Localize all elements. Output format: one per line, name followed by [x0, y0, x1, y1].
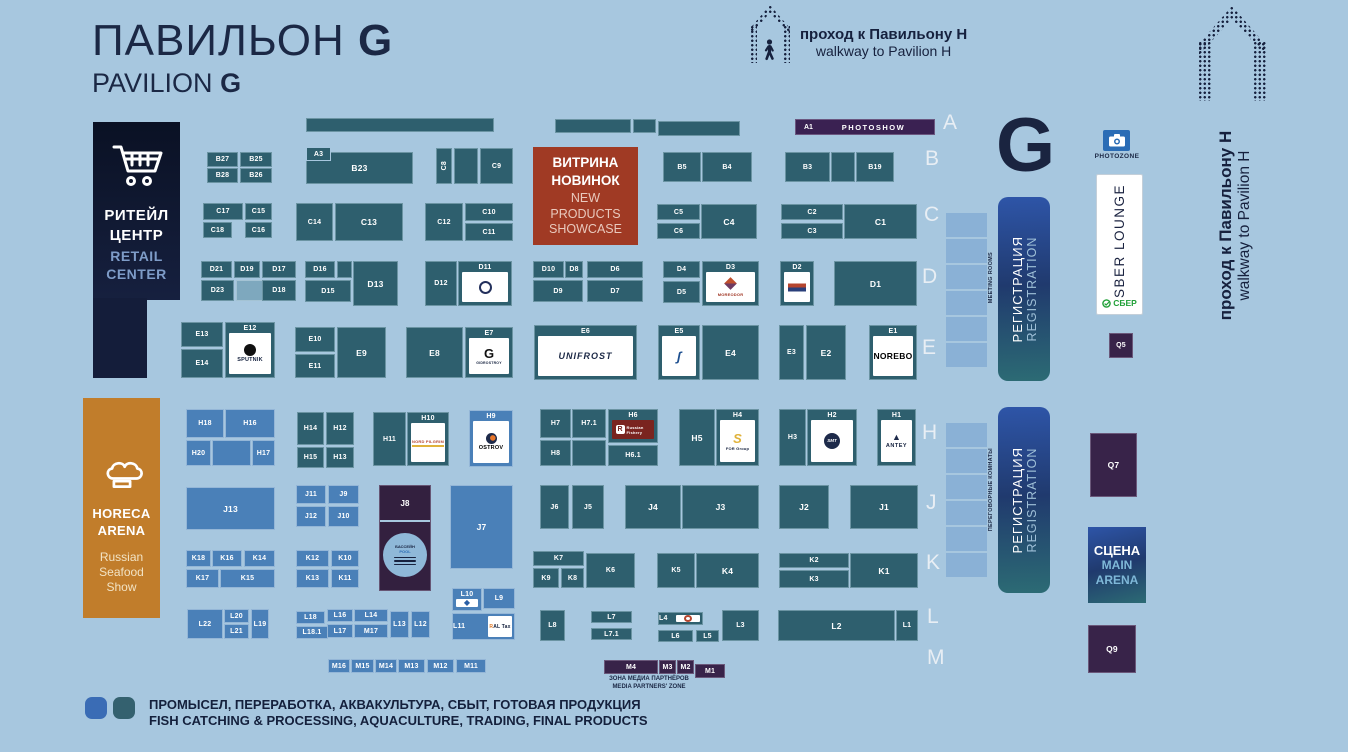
unifrost-logo: UNIFROST	[538, 336, 633, 376]
booth-e2[interactable]: E2	[806, 325, 846, 380]
booth-label: D1	[870, 279, 881, 289]
booth-k9[interactable]: K9	[533, 568, 559, 588]
booth-d10[interactable]: D10	[533, 261, 564, 278]
booth-k1[interactable]: K1	[850, 553, 918, 588]
booth-k3[interactable]: K3	[779, 570, 849, 588]
booth-label: M3	[662, 664, 672, 671]
booth-b25[interactable]: B25	[240, 152, 272, 167]
walkway-top-ru: проход к Павильону H	[800, 26, 967, 43]
booth-c6[interactable]: C6	[657, 223, 700, 239]
row-letter-a: A	[943, 112, 957, 133]
booth-l16[interactable]: L16	[327, 609, 353, 622]
media-zone-en: MEDIA PARTNERS' ZONE	[579, 683, 719, 691]
booth-l4[interactable]: L4	[658, 612, 703, 625]
stage-label-ru: СЦЕНА	[1094, 543, 1140, 558]
meeting-room	[946, 449, 987, 473]
booth-b4[interactable]: B4	[702, 152, 752, 182]
booth-c9[interactable]: C9	[480, 148, 513, 184]
booth-unlabeled[interactable]	[658, 121, 740, 136]
booth-h8[interactable]: H8	[540, 440, 571, 466]
booth-j8[interactable]: J8 БАССЕЙН POOL	[379, 485, 431, 591]
booth-c11[interactable]: C11	[465, 223, 513, 241]
page-title: ПАВИЛЬОН G PAVILION G	[92, 16, 393, 99]
booth-k2[interactable]: K2	[779, 553, 849, 568]
booth-label: L7.1	[604, 631, 619, 638]
booth-label: B26	[249, 172, 262, 179]
meeting-room	[946, 317, 987, 341]
booth-l11[interactable]: L11RAL Tax	[452, 613, 515, 640]
booth-h15[interactable]: H15	[297, 447, 324, 468]
booth-label: C10	[482, 209, 495, 216]
booth-label: K11	[338, 575, 351, 582]
booth-unlabeled[interactable]	[236, 280, 264, 301]
booth-k8[interactable]: K8	[561, 568, 584, 588]
booth-h7[interactable]: H7	[540, 409, 571, 438]
row-letter-d: D	[922, 266, 937, 287]
gidrostroy-logo: GIDROSTROY	[469, 338, 509, 374]
booth-l2[interactable]: L2	[778, 610, 895, 641]
booth-k16[interactable]: K16	[212, 550, 242, 567]
booth-c16[interactable]: C16	[245, 222, 272, 238]
booth-m12[interactable]: M12	[427, 659, 454, 673]
booth-label: K1	[878, 566, 889, 576]
booth-d16[interactable]: D16	[305, 261, 335, 278]
booth-unlabeled[interactable]	[633, 119, 656, 133]
booth-l14[interactable]: L14	[354, 609, 388, 622]
booth-d1[interactable]: D1	[834, 261, 917, 306]
title-letter-en: G	[220, 68, 241, 98]
chef-hat-icon	[101, 456, 143, 492]
booth-label: K4	[722, 566, 733, 576]
booth-j9[interactable]: J9	[328, 485, 359, 504]
retail-label-ru2: ЦЕНТР	[110, 227, 163, 244]
booth-l13[interactable]: L13	[390, 611, 409, 638]
booth-label: H6	[628, 412, 637, 419]
booth-l18.1[interactable]: L18.1	[296, 626, 328, 639]
booth-label: C18	[211, 227, 224, 234]
booth-l20[interactable]: L20	[224, 609, 249, 623]
booth-h4[interactable]: H4FOR Group	[716, 409, 759, 466]
meeting-room	[946, 291, 987, 315]
booth-h2[interactable]: H2	[807, 409, 857, 466]
booth-e8[interactable]: E8	[406, 327, 463, 378]
horeca-arena[interactable]: HORECA ARENA Russian Seafood Show	[83, 398, 160, 618]
showcase-ru1: ВИТРИНА	[553, 155, 619, 170]
booth-label: H7	[551, 420, 560, 427]
booth-m16[interactable]: M16	[328, 659, 350, 673]
booth-k17[interactable]: K17	[186, 569, 219, 588]
main-arena-stage[interactable]: СЦЕНА MAIN ARENA	[1088, 527, 1146, 603]
booth-j7[interactable]: J7	[450, 485, 513, 569]
booth-d3[interactable]: D3MOREODOR	[702, 261, 759, 306]
booth-b28[interactable]: B28	[207, 168, 238, 183]
booth-d2[interactable]: D2	[780, 261, 814, 306]
booth-d23[interactable]: D23	[201, 280, 234, 301]
booth-q9[interactable]: Q9	[1088, 625, 1136, 673]
booth-label: H1	[892, 412, 901, 419]
booth-d19[interactable]: D19	[234, 261, 260, 278]
booth-label: C6	[674, 228, 683, 235]
booth-h14[interactable]: H14	[297, 412, 324, 445]
booth-h7.1[interactable]: H7.1	[572, 409, 606, 438]
booth-label: C2	[807, 209, 816, 216]
booth-c18[interactable]: C18	[203, 222, 232, 238]
booth-label: B3	[803, 164, 812, 171]
booth-l7.1[interactable]: L7.1	[591, 628, 632, 640]
ostrov-logo: OSTROV	[473, 421, 509, 463]
booth-label: Q7	[1108, 460, 1120, 470]
booth-label: K10	[338, 555, 351, 562]
booth-label: D21	[210, 266, 223, 273]
booth-label: M1	[705, 668, 715, 675]
booth-k18[interactable]: K18	[186, 550, 211, 567]
booth-label: E14	[195, 360, 208, 367]
booth-d21[interactable]: D21	[201, 261, 232, 278]
booth-label: C3	[807, 228, 816, 235]
booth-e14[interactable]: E14	[181, 349, 223, 378]
booth-label: D19	[240, 266, 253, 273]
booth-j5[interactable]: J5	[572, 485, 604, 529]
booth-l6[interactable]: L6	[658, 630, 693, 642]
booth-unlabeled[interactable]	[572, 440, 606, 466]
booth-label: L13	[393, 621, 406, 628]
booth-label: L6	[671, 633, 680, 640]
ral-logo: RAL Tax	[488, 616, 512, 637]
booth-c13[interactable]: C13	[335, 203, 403, 241]
booth-m1[interactable]: M1	[695, 664, 725, 678]
booth-e5[interactable]: E5	[658, 325, 700, 380]
booth-h10[interactable]: H10NORD PILGRIM	[407, 412, 449, 466]
booth-label: J3	[716, 502, 726, 512]
booth-h6[interactable]: H6Russian Fishery	[608, 409, 658, 443]
booth-c2[interactable]: C2	[781, 204, 843, 220]
booth-l9[interactable]: L9	[483, 588, 515, 609]
booth-e7[interactable]: E7GIDROSTROY	[465, 327, 513, 378]
pool-icon: БАССЕЙН POOL	[383, 533, 427, 577]
pool-label-en: POOL	[399, 549, 410, 554]
meeting-room	[946, 475, 987, 499]
booth-label: B27	[216, 156, 229, 163]
booth-label: K15	[241, 575, 254, 582]
booth-label: L18.1	[303, 629, 322, 636]
booth-b26[interactable]: B26	[240, 168, 272, 183]
booth-k11[interactable]: K11	[331, 569, 359, 588]
walkway-arch-icon	[750, 5, 790, 63]
booth-label: B28	[216, 172, 229, 179]
booth-label: E6	[581, 328, 590, 335]
booth-l5[interactable]: L5	[696, 630, 719, 642]
booth-m14[interactable]: M14	[375, 659, 397, 673]
booth-c4[interactable]: C4	[701, 204, 757, 239]
booth-l7[interactable]: L7	[591, 611, 632, 623]
booth-unlabeled[interactable]	[337, 261, 352, 278]
booth-k14[interactable]: K14	[244, 550, 275, 567]
booth-label: K17	[196, 575, 209, 582]
booth-unlabeled[interactable]	[555, 119, 631, 133]
booth-l17[interactable]: L17	[327, 624, 353, 638]
booth-l3[interactable]: L3	[722, 610, 759, 641]
booth-label: J12	[305, 513, 317, 520]
booth-k10[interactable]: K10	[331, 550, 359, 567]
booth-label: D16	[313, 266, 326, 273]
booth-label: D2	[792, 264, 801, 271]
booth-label: C12	[437, 219, 450, 226]
booth-h1[interactable]: H1ANTEY	[877, 409, 916, 466]
booth-h17[interactable]: H17	[252, 440, 275, 466]
booth-label: E4	[725, 348, 736, 358]
pedestrian-icon	[762, 39, 777, 63]
meeting-room	[946, 265, 987, 289]
booth-label: H20	[192, 450, 205, 457]
booth-k15[interactable]: K15	[220, 569, 275, 588]
booth-label: E3	[787, 349, 796, 356]
booth-c12[interactable]: C12	[425, 203, 463, 241]
showcase-ru2: НОВИНОК	[551, 173, 619, 188]
booth-label: C5	[674, 209, 683, 216]
booth-b3[interactable]: B3	[785, 152, 830, 182]
booth-h16[interactable]: H16	[225, 409, 275, 438]
booth-label: L10	[461, 591, 474, 598]
booth-d8[interactable]: D8	[565, 261, 583, 278]
booth-label: C4	[723, 217, 734, 227]
booth-k13[interactable]: K13	[296, 569, 329, 588]
booth-c3[interactable]: C3	[781, 223, 843, 239]
stage-label-en2: ARENA	[1096, 573, 1139, 587]
booth-label: C11	[482, 229, 495, 236]
new-products-showcase[interactable]: ВИТРИНА НОВИНОК NEW PRODUCTS SHOWCASE	[533, 147, 638, 245]
booth-k4[interactable]: K4	[696, 553, 759, 588]
booth-e12[interactable]: E12SPUTNIK	[225, 322, 275, 378]
booth-j6[interactable]: J6	[540, 485, 569, 529]
booth-j2[interactable]: J2	[779, 485, 829, 529]
booth-label: L22	[199, 621, 212, 628]
booth-h13[interactable]: H13	[326, 447, 354, 468]
booth-h9[interactable]: H9OSTROV	[469, 410, 513, 467]
booth-label: M2	[680, 664, 690, 671]
booth-l18[interactable]: L18	[296, 611, 325, 624]
sber-lounge[interactable]: SBER LOUNGE СБЕР	[1096, 174, 1143, 315]
booth-label: Q9	[1106, 644, 1118, 654]
booth-d5[interactable]: D5	[663, 281, 700, 303]
booth-l22[interactable]: L22	[187, 609, 223, 639]
booth-label: L20	[230, 613, 243, 620]
walkway-arrow-icon	[1198, 6, 1266, 101]
meeting-rooms-label-ru: ПЕРЕГОВОРНЫЕ КОМНАТЫ	[988, 448, 994, 531]
walkway-right-en: walkway to Pavilion H	[1236, 98, 1254, 353]
booth-j1[interactable]: J1	[850, 485, 918, 529]
booth-label: K8	[568, 575, 577, 582]
booth-k5[interactable]: K5	[657, 553, 695, 588]
booth-l21[interactable]: L21	[224, 624, 249, 639]
booth-label: H14	[304, 425, 317, 432]
booth-c1[interactable]: C1	[844, 204, 917, 239]
booth-h18[interactable]: H18	[186, 409, 224, 438]
booth-c14[interactable]: C14	[296, 203, 333, 241]
registration-en: REGISTRATION	[1025, 447, 1039, 553]
showcase-en1: NEW	[571, 191, 600, 205]
booth-c5[interactable]: C5	[657, 204, 700, 220]
sber-logo-icon	[1102, 299, 1111, 308]
booth-label: L7	[607, 614, 616, 621]
booth-b5[interactable]: B5	[663, 152, 701, 182]
booth-l12[interactable]: L12	[411, 611, 430, 638]
registration-desk-lower[interactable]: РЕГИСТРАЦИЯ REGISTRATION	[998, 407, 1050, 593]
booth-h3[interactable]: H3	[779, 409, 806, 466]
booth-m4[interactable]: M4	[604, 660, 658, 674]
booth-l1[interactable]: L1	[896, 610, 918, 641]
booth-label: M15	[355, 663, 369, 670]
title-en: PAVILION	[92, 68, 213, 98]
booth-h5[interactable]: H5	[679, 409, 715, 466]
booth-unlabeled[interactable]	[212, 440, 251, 466]
meeting-rooms-label: MEETING ROOMS	[988, 252, 994, 303]
booth-d18[interactable]: D18	[262, 280, 296, 301]
registration-ru: РЕГИСТРАЦИЯ	[1010, 236, 1025, 342]
booth-e3[interactable]: E3	[779, 325, 804, 380]
booth-e9[interactable]: E9	[337, 327, 386, 378]
booth-h20[interactable]: H20	[186, 440, 211, 466]
booth-l10[interactable]: L10	[452, 588, 482, 611]
wave-logo	[662, 336, 696, 376]
booth-h12[interactable]: H12	[326, 412, 354, 445]
booth-unlabeled[interactable]	[831, 152, 855, 182]
title-ru: ПАВИЛЬОН	[92, 16, 345, 65]
booth-m17[interactable]: M17	[354, 624, 388, 638]
registration-desk-upper[interactable]: РЕГИСТРАЦИЯ REGISTRATION	[998, 197, 1050, 381]
moreodor-logo: MOREODOR	[706, 272, 755, 302]
shopping-cart-icon	[109, 140, 165, 190]
booth-label: H12	[333, 425, 346, 432]
booth-q5[interactable]: Q5	[1109, 333, 1133, 358]
booth-m3[interactable]: M3	[659, 660, 676, 674]
booth-label: J1	[879, 502, 889, 512]
booth-unlabeled[interactable]	[454, 148, 478, 184]
retail-center-extension	[93, 298, 147, 378]
booth-c10[interactable]: C10	[465, 203, 513, 221]
booth-d17[interactable]: D17	[262, 261, 296, 278]
booth-m15[interactable]: M15	[351, 659, 374, 673]
booth-b27[interactable]: B27	[207, 152, 238, 167]
booth-e4[interactable]: E4	[702, 325, 759, 380]
ring-logo	[676, 615, 700, 622]
booth-label: J2	[799, 502, 809, 512]
horeca-subtitle: Russian Seafood Show	[83, 550, 160, 595]
rusfishery-logo: Russian Fishery	[612, 420, 654, 439]
booth-c17[interactable]: C17	[203, 203, 243, 220]
small-logo	[456, 599, 478, 607]
booth-d12[interactable]: D12	[425, 261, 457, 306]
booth-d4[interactable]: D4	[663, 261, 700, 278]
booth-m11[interactable]: M11	[456, 659, 486, 673]
booth-k12[interactable]: K12	[296, 550, 329, 567]
booth-e10[interactable]: E10	[295, 327, 335, 352]
registration-ru: РЕГИСТРАЦИЯ	[1010, 447, 1025, 553]
booth-m2[interactable]: M2	[677, 660, 694, 674]
row-letter-k: K	[926, 552, 940, 573]
booth-l8[interactable]: L8	[540, 610, 565, 641]
row-letter-e: E	[922, 337, 936, 358]
booth-label: H2	[827, 412, 836, 419]
booth-j4[interactable]: J4	[625, 485, 681, 529]
booth-label: D15	[321, 288, 334, 295]
booth-a3[interactable]: A3	[306, 147, 331, 161]
booth-a1-photoshow[interactable]: A1 PHOTOSHOW	[795, 119, 935, 135]
booth-j11[interactable]: J11	[296, 485, 326, 504]
booth-label: C13	[361, 217, 377, 227]
booth-m13[interactable]: M13	[398, 659, 425, 673]
booth-h11[interactable]: H11	[373, 412, 406, 466]
booth-d11[interactable]: D11	[458, 261, 512, 306]
booth-j12[interactable]: J12	[296, 506, 326, 527]
booth-label: D12	[434, 280, 447, 287]
booth-label: J9	[339, 491, 347, 498]
booth-l19[interactable]: L19	[251, 609, 269, 639]
booth-e11[interactable]: E11	[295, 354, 335, 378]
booth-k6[interactable]: K6	[586, 553, 635, 588]
booth-label: L8	[548, 622, 557, 629]
booth-label: J11	[305, 491, 317, 498]
booth-label: L3	[736, 622, 745, 629]
booth-d7[interactable]: D7	[587, 280, 643, 302]
booth-label: K18	[192, 555, 205, 562]
booth-label: C16	[252, 227, 265, 234]
showcase-en2: PRODUCTS	[550, 207, 620, 221]
booth-d15[interactable]: D15	[305, 280, 351, 302]
booth-e6[interactable]: E6UNIFROST	[534, 325, 637, 380]
sputnik-logo: SPUTNIK	[229, 333, 271, 374]
booth-label: E11	[309, 363, 322, 370]
booth-label: E10	[308, 336, 321, 343]
booth-label: H8	[551, 450, 560, 457]
booth-h6.1[interactable]: H6.1	[608, 445, 658, 466]
booth-e1[interactable]: E1NOREBO	[869, 325, 917, 380]
booth-k7[interactable]: K7	[533, 551, 584, 566]
booth-d9[interactable]: D9	[533, 280, 583, 302]
sber-brand-label: СБЕР	[1113, 298, 1137, 308]
booth-q7[interactable]: Q7	[1090, 433, 1137, 497]
booth-label: L21	[230, 628, 243, 635]
booth-j10[interactable]: J10	[328, 506, 359, 527]
booth-d13[interactable]: D13	[353, 261, 398, 306]
walkway-right-ru: проход к Павильону H	[1216, 98, 1236, 353]
booth-label: K16	[220, 555, 233, 562]
booth-label: H4	[733, 412, 742, 419]
booth-c8[interactable]: C8	[436, 148, 452, 184]
booth-label: L19	[254, 621, 267, 628]
meeting-room	[946, 343, 987, 367]
booth-j3[interactable]: J3	[682, 485, 759, 529]
booth-label: H9	[486, 413, 495, 420]
booth-b19[interactable]: B19	[856, 152, 894, 182]
retail-center[interactable]: РИТЕЙЛ ЦЕНТР RETAIL CENTER	[93, 122, 180, 300]
booth-j13[interactable]: J13	[186, 487, 275, 530]
booth-c15[interactable]: C15	[245, 203, 272, 220]
booth-label: L12	[414, 621, 427, 628]
booth-label: C17	[216, 208, 229, 215]
walkway-right-label: проход к Павильону H walkway to Pavilion…	[1206, 98, 1264, 353]
booth-label: H16	[243, 420, 256, 427]
booth-label: B5	[677, 164, 686, 171]
photozone-label: PHOTOZONE	[1088, 153, 1146, 160]
booth-e13[interactable]: E13	[181, 322, 223, 347]
booth-d6[interactable]: D6	[587, 261, 643, 278]
booth-label: D3	[726, 264, 735, 271]
booth-label: L4	[659, 615, 676, 622]
booth-unlabeled[interactable]	[306, 118, 494, 132]
booth-label: J4	[648, 502, 658, 512]
booth-label: C1	[875, 217, 886, 227]
legend: ПРОМЫСЕЛ, ПЕРЕРАБОТКА, АКВАКУЛЬТУРА, СБЫ…	[85, 697, 648, 730]
